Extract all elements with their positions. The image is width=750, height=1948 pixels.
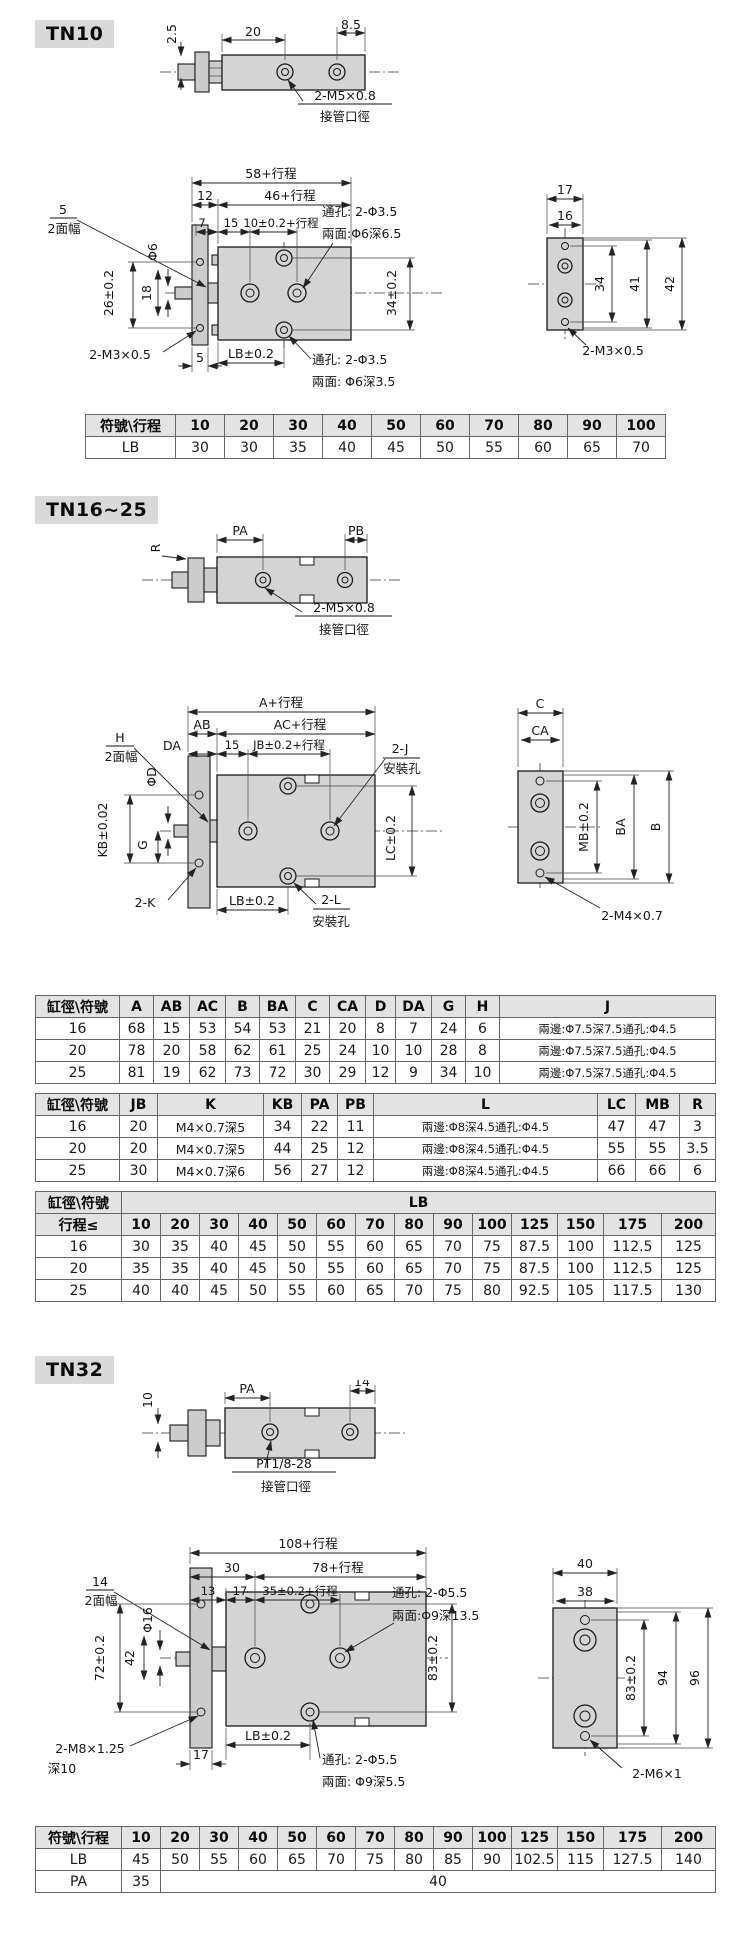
data-cell: 25 <box>36 1062 120 1084</box>
header-cell: 缸徑\符號 <box>36 996 120 1018</box>
dim-16: 16 <box>557 208 573 223</box>
dim-kb: KB±0.02 <box>95 802 110 857</box>
header-cell: KB <box>264 1094 302 1116</box>
header-cell: 175 <box>604 1214 662 1236</box>
data-cell: 60 <box>239 1849 278 1871</box>
header-cell: 100 <box>473 1214 512 1236</box>
header-cell: 90 <box>434 1827 473 1849</box>
flat-width-label: 2面幅 <box>105 749 138 764</box>
dim-46: 46+行程 <box>264 188 316 203</box>
mount-hole-label-top: 安裝孔 <box>383 761 421 776</box>
data-cell: 65 <box>356 1280 395 1302</box>
data-cell: 100 <box>558 1258 604 1280</box>
data-cell: 20 <box>330 1018 366 1040</box>
data-cell: 12 <box>338 1160 374 1182</box>
data-cell: 25 <box>296 1040 330 1062</box>
data-cell: M4×0.7深5 <box>158 1116 264 1138</box>
header-cell: 行程≤ <box>36 1214 122 1236</box>
dim-pitch: 35±0.2+行程 <box>262 1584 338 1598</box>
data-cell: 40 <box>122 1280 161 1302</box>
cylinder-front-shape <box>160 756 442 908</box>
end-plate-shape <box>538 1600 636 1756</box>
data-cell: 50 <box>278 1258 317 1280</box>
data-cell: 兩邊:Φ8深4.5通孔:Φ4.5 <box>374 1138 598 1160</box>
data-cell: 61 <box>260 1040 296 1062</box>
data-cell: 35 <box>161 1236 200 1258</box>
data-cell: 20 <box>154 1040 190 1062</box>
dim-g: G <box>135 840 150 850</box>
data-cell: 90 <box>473 1849 512 1871</box>
dim-ba: BA <box>613 818 628 836</box>
header-cell: PA <box>302 1094 338 1116</box>
data-cell: LB <box>36 1849 122 1871</box>
dim-94: 94 <box>655 1670 670 1686</box>
data-cell: PA <box>36 1871 122 1893</box>
data-cell: 6 <box>680 1160 716 1182</box>
table-row: 缸徑\符號AABACBBACCADDAGHJ <box>36 996 716 1018</box>
cylinder-top-shape <box>142 557 402 603</box>
cylinder-top-shape <box>142 1408 408 1458</box>
dim-34: 34±0.2 <box>384 270 399 316</box>
dim-c: C <box>536 696 545 711</box>
through-hole-note-bottom-2: 兩面: Φ6深3.5 <box>312 374 395 389</box>
table-row: 254040455055606570758092.5105117.5130 <box>36 1280 716 1302</box>
data-cell: 54 <box>226 1018 260 1040</box>
data-cell: 70 <box>317 1849 356 1871</box>
data-cell: 47 <box>636 1116 680 1138</box>
through-hole-note-bottom-1: 通孔: 2-Φ3.5 <box>312 352 387 367</box>
dim-rod-dia: Φ6 <box>145 243 160 261</box>
dim-rod-dia: ΦD <box>144 767 159 786</box>
data-cell: 87.5 <box>512 1258 558 1280</box>
tn16-side-view-drawing: C CA MB±0.2 BA B 2-M4×0.7 <box>505 690 750 940</box>
dim-72: 72±0.2 <box>92 1635 107 1681</box>
header-cell: 70 <box>470 415 519 437</box>
data-cell: 66 <box>598 1160 636 1182</box>
data-cell: 6 <box>466 1018 500 1040</box>
data-cell: 29 <box>330 1062 366 1084</box>
data-cell: 75 <box>434 1280 473 1302</box>
data-cell: 55 <box>317 1258 356 1280</box>
header-cell: 50 <box>278 1827 317 1849</box>
header-cell: 200 <box>662 1827 716 1849</box>
header-cell: A <box>120 996 154 1018</box>
header-cell: 50 <box>278 1214 317 1236</box>
data-cell: 112.5 <box>604 1236 662 1258</box>
data-cell: 44 <box>264 1138 302 1160</box>
dim-15: 15 <box>225 738 240 752</box>
tn10-front-view-drawing: 58+行程 12 46+行程 7 15 10±0.2+行程 5 2面幅 Φ6 2… <box>35 140 505 400</box>
data-cell: 78 <box>120 1040 154 1062</box>
table-row: 缸徑\符號JBKKBPAPBLLCMBR <box>36 1094 716 1116</box>
data-cell: 68 <box>120 1018 154 1040</box>
through-hole-note-bottom-2: 兩面: Φ9深5.5 <box>322 1774 405 1789</box>
tn10-top-view-drawing: 20 8.5 2.5 2-M5×0.8 接管口徑 <box>130 6 420 130</box>
mount-hole-note-top: 2-J <box>392 741 409 756</box>
data-cell: 125 <box>662 1236 716 1258</box>
data-cell: 66 <box>636 1160 680 1182</box>
tn32-stroke-table: 符號\行程102030405060708090100125150175200LB… <box>35 1826 716 1893</box>
table-row: 2530M4×0.7深6562712兩邊:Φ8深4.5通孔:Φ4.566666 <box>36 1160 716 1182</box>
data-cell: 30 <box>176 437 225 459</box>
header-cell: 20 <box>161 1827 200 1849</box>
tn16-dimension-table-1: 缸徑\符號AABACBBACCADDAGHJ166815535453212087… <box>35 995 716 1084</box>
dim-7: 7 <box>198 216 205 230</box>
data-cell: 20 <box>36 1258 122 1280</box>
data-cell: 140 <box>662 1849 716 1871</box>
data-cell: 35 <box>274 437 323 459</box>
data-cell: 73 <box>226 1062 260 1084</box>
table-row: 缸徑\符號LB <box>36 1192 716 1214</box>
dim-38: 38 <box>577 1584 593 1599</box>
data-cell: 45 <box>239 1258 278 1280</box>
data-cell: 20 <box>120 1116 158 1138</box>
header-cell: 50 <box>372 415 421 437</box>
data-cell: 65 <box>278 1849 317 1871</box>
data-cell: 16 <box>36 1018 120 1040</box>
table-row: 20782058626125241010288兩邊:Φ7.5深7.5通孔:Φ4.… <box>36 1040 716 1062</box>
header-cell: D <box>366 996 396 1018</box>
dim-15: 15 <box>224 216 239 230</box>
dim-jb: JB±0.2+行程 <box>252 738 325 752</box>
data-cell: 45 <box>239 1236 278 1258</box>
data-cell: 56 <box>264 1160 302 1182</box>
header-cell: LC <box>598 1094 636 1116</box>
data-cell: 28 <box>432 1040 466 1062</box>
header-cell: 缸徑\符號 <box>36 1094 120 1116</box>
data-cell: 45 <box>372 437 421 459</box>
data-cell: 92.5 <box>512 1280 558 1302</box>
header-cell: PB <box>338 1094 374 1116</box>
data-cell: 58 <box>190 1040 226 1062</box>
dim-pb: PB <box>348 523 364 538</box>
header-cell: JB <box>120 1094 158 1116</box>
data-cell: 16 <box>36 1116 120 1138</box>
flange-thread-note: 2-K <box>135 895 156 910</box>
dim-b: B <box>648 823 663 832</box>
data-cell: 16 <box>36 1236 122 1258</box>
header-cell: 10 <box>122 1214 161 1236</box>
mount-hole-label-bottom: 安裝孔 <box>312 914 350 929</box>
flange-thread-note: 2-M3×0.5 <box>89 347 151 362</box>
flange-thread-note: 2-M8×1.25 <box>55 1741 125 1756</box>
data-cell: 55 <box>317 1236 356 1258</box>
data-cell: 62 <box>226 1040 260 1062</box>
data-cell: 兩邊:Φ7.5深7.5通孔:Φ4.5 <box>500 1040 716 1062</box>
data-cell: 117.5 <box>604 1280 662 1302</box>
dim-14: 14 <box>354 1380 370 1389</box>
header-cell: 10 <box>122 1827 161 1849</box>
header-cell: L <box>374 1094 598 1116</box>
dim-42: 42 <box>662 276 677 292</box>
data-cell: 65 <box>395 1258 434 1280</box>
header-cell: 200 <box>662 1214 716 1236</box>
data-cell: 50 <box>421 437 470 459</box>
header-cell: 30 <box>200 1214 239 1236</box>
data-cell: 7 <box>396 1018 432 1040</box>
tn16-lb-stroke-table: 缸徑\符號LB行程≤102030405060708090100125150175… <box>35 1191 716 1302</box>
data-cell: 10 <box>466 1062 500 1084</box>
data-cell: 3.5 <box>680 1138 716 1160</box>
table-row: 符號\行程102030405060708090100125150175200 <box>36 1827 716 1849</box>
data-cell: 19 <box>154 1062 190 1084</box>
dim-5: 5 <box>196 350 204 365</box>
data-cell: 35 <box>161 1258 200 1280</box>
data-cell: 27 <box>302 1160 338 1182</box>
header-cell: G <box>432 996 466 1018</box>
data-cell: 兩邊:Φ7.5深7.5通孔:Φ4.5 <box>500 1062 716 1084</box>
dim-41: 41 <box>627 276 642 292</box>
data-cell: 65 <box>395 1236 434 1258</box>
data-cell: 70 <box>434 1236 473 1258</box>
dim-12: 12 <box>197 188 213 203</box>
data-cell: 25 <box>36 1280 122 1302</box>
header-cell: 100 <box>617 415 666 437</box>
data-cell: M4×0.7深6 <box>158 1160 264 1182</box>
data-cell: 53 <box>190 1018 226 1040</box>
header-cell: 100 <box>473 1827 512 1849</box>
header-cell: J <box>500 996 716 1018</box>
dim-40: 40 <box>577 1556 593 1571</box>
dim-pitch: 10±0.2+行程 <box>243 216 319 230</box>
plate-thread-note: 2-M6×1 <box>632 1766 682 1781</box>
data-cell: 22 <box>302 1116 338 1138</box>
header-cell: CA <box>330 996 366 1018</box>
table-row: LB30303540455055606570 <box>86 437 666 459</box>
data-cell: 11 <box>338 1116 374 1138</box>
data-cell: 60 <box>317 1280 356 1302</box>
header-cell: 40 <box>239 1214 278 1236</box>
plate-thread-note: 2-M4×0.7 <box>601 908 663 923</box>
data-cell: 12 <box>366 1062 396 1084</box>
data-cell: 55 <box>200 1849 239 1871</box>
section-title-tn10: TN10 <box>35 20 114 48</box>
data-cell: 30 <box>122 1236 161 1258</box>
dim-26: 26±0.2 <box>101 270 116 316</box>
data-cell: 3 <box>680 1116 716 1138</box>
table-row: 1620M4×0.7深5342211兩邊:Φ8深4.5通孔:Φ4.547473 <box>36 1116 716 1138</box>
data-cell: 兩邊:Φ8深4.5通孔:Φ4.5 <box>374 1116 598 1138</box>
data-cell: 30 <box>225 437 274 459</box>
header-cell: C <box>296 996 330 1018</box>
data-cell: 8 <box>366 1018 396 1040</box>
dim-pa: PA <box>232 523 248 538</box>
dim-ab: AB <box>193 717 210 732</box>
data-cell: 60 <box>519 437 568 459</box>
data-cell: 12 <box>338 1138 374 1160</box>
header-cell: 60 <box>317 1827 356 1849</box>
dim-da: DA <box>163 738 181 753</box>
data-cell: 35 <box>122 1258 161 1280</box>
through-hole-note-top-2: 兩面:Φ9深13.5 <box>392 1608 479 1623</box>
data-cell: 20 <box>120 1138 158 1160</box>
data-cell: 47 <box>598 1116 636 1138</box>
data-cell: 80 <box>395 1849 434 1871</box>
data-cell: 55 <box>636 1138 680 1160</box>
data-cell: 兩邊:Φ7.5深7.5通孔:Φ4.5 <box>500 1018 716 1040</box>
data-cell: 25 <box>36 1160 120 1182</box>
data-cell: 30 <box>296 1062 330 1084</box>
data-cell: 9 <box>396 1062 432 1084</box>
data-cell: 24 <box>432 1018 466 1040</box>
header-cell: 150 <box>558 1827 604 1849</box>
flat-width-num: 14 <box>92 1574 108 1589</box>
header-cell: 20 <box>225 415 274 437</box>
data-cell: 40 <box>200 1258 239 1280</box>
flat-width-label: 2面幅 <box>48 221 81 236</box>
header-cell: AB <box>154 996 190 1018</box>
flange-thread-depth: 深10 <box>48 1761 76 1776</box>
table-row: 25811962737230291293410兩邊:Φ7.5深7.5通孔:Φ4.… <box>36 1062 716 1084</box>
dim-78: 78+行程 <box>312 1560 364 1575</box>
header-cell: 80 <box>519 415 568 437</box>
header-cell: 符號\行程 <box>36 1827 122 1849</box>
tn32-top-view-drawing: PA 14 10 PT1/8-28 接管口徑 <box>125 1380 425 1510</box>
port-thread-note: 2-M5×0.8 <box>313 600 375 615</box>
data-cell: 75 <box>473 1258 512 1280</box>
data-cell: 60 <box>356 1258 395 1280</box>
through-hole-note-top-1: 通孔: 2-Φ5.5 <box>392 1585 467 1600</box>
header-cell: 90 <box>434 1214 473 1236</box>
tn32-front-view-drawing: 108+行程 30 78+行程 13 17 35±0.2+行程 14 2面幅 Φ… <box>35 1530 505 1805</box>
through-hole-note-top-2: 兩面:Φ6深6.5 <box>322 226 401 241</box>
through-hole-note-top-1: 通孔: 2-Φ3.5 <box>322 204 397 219</box>
table-row: 166815535453212087246兩邊:Φ7.5深7.5通孔:Φ4.5 <box>36 1018 716 1040</box>
data-cell: 125 <box>662 1258 716 1280</box>
header-cell: 符號\行程 <box>86 415 176 437</box>
header-cell: 90 <box>568 415 617 437</box>
data-cell: 40 <box>161 1280 200 1302</box>
end-plate-shape <box>528 228 602 342</box>
header-cell: 175 <box>604 1827 662 1849</box>
data-cell: 62 <box>190 1062 226 1084</box>
dim-lb: LB±0.2 <box>245 1728 291 1743</box>
header-cell: LB <box>122 1192 716 1214</box>
header-cell: 80 <box>395 1214 434 1236</box>
data-cell: 70 <box>617 437 666 459</box>
dim-96: 96 <box>687 1670 702 1686</box>
dim-18: 18 <box>139 285 154 301</box>
header-cell: 125 <box>512 1214 558 1236</box>
header-cell: BA <box>260 996 296 1018</box>
data-cell: 34 <box>264 1116 302 1138</box>
dim-rod-dia: Φ16 <box>140 1607 155 1633</box>
data-cell: 21 <box>296 1018 330 1040</box>
flat-width-num: 5 <box>59 202 67 217</box>
dim-8-5: 8.5 <box>341 17 361 32</box>
header-cell: 70 <box>356 1827 395 1849</box>
data-cell: 75 <box>356 1849 395 1871</box>
data-cell: 8 <box>466 1040 500 1062</box>
data-cell: 20 <box>36 1138 120 1160</box>
data-cell: 75 <box>473 1236 512 1258</box>
tn32-side-view-drawing: 40 38 83±0.2 94 96 2-M6×1 <box>505 1545 750 1800</box>
plate-thread-note: 2-M3×0.5 <box>582 343 644 358</box>
data-cell: LB <box>86 437 176 459</box>
data-cell: 30 <box>120 1160 158 1182</box>
data-cell: 115 <box>558 1849 604 1871</box>
data-cell: 105 <box>558 1280 604 1302</box>
dim-lc: LC±0.2 <box>383 815 398 861</box>
dim-17: 17 <box>233 1584 248 1598</box>
tn10-stroke-table: 符號\行程102030405060708090100LB303035404550… <box>85 414 666 459</box>
port-label-cn: 接管口徑 <box>261 1479 311 1494</box>
cylinder-front-shape <box>165 225 445 348</box>
dim-total: A+行程 <box>259 695 304 710</box>
dim-total: 58+行程 <box>245 166 297 181</box>
tn10-side-view-drawing: 17 16 34 41 42 2-M3×0.5 <box>505 160 745 400</box>
data-cell: 87.5 <box>512 1236 558 1258</box>
flat-width-label: 2面幅 <box>85 1593 118 1608</box>
table-row: 203535404550556065707587.5100112.5125 <box>36 1258 716 1280</box>
data-cell: 72 <box>260 1062 296 1084</box>
header-cell: B <box>226 996 260 1018</box>
data-cell: 15 <box>154 1018 190 1040</box>
data-cell: 40 <box>161 1871 716 1893</box>
data-cell: 50 <box>278 1236 317 1258</box>
dim-34: 34 <box>592 276 607 292</box>
data-cell: 24 <box>330 1040 366 1062</box>
section-title-tn32: TN32 <box>35 1356 114 1384</box>
dim-ac: AC+行程 <box>274 717 327 732</box>
port-thread-note: PT1/8-28 <box>256 1456 312 1471</box>
header-cell: 40 <box>323 415 372 437</box>
header-cell: 125 <box>512 1827 558 1849</box>
header-cell: 缸徑\符號 <box>36 1192 122 1214</box>
cylinder-top-shape <box>160 52 402 92</box>
data-cell: 85 <box>434 1849 473 1871</box>
header-cell: R <box>680 1094 716 1116</box>
through-hole-note-bottom-1: 通孔: 2-Φ5.5 <box>322 1752 397 1767</box>
data-cell: 35 <box>122 1871 161 1893</box>
header-cell: 150 <box>558 1214 604 1236</box>
header-cell: 70 <box>356 1214 395 1236</box>
dim-83: 83±0.2 <box>425 1635 440 1681</box>
mount-hole-note-bottom: 2-L <box>321 892 340 907</box>
header-cell: 40 <box>239 1827 278 1849</box>
dim-10: 10 <box>140 1392 155 1408</box>
data-cell: 80 <box>473 1280 512 1302</box>
data-cell: 20 <box>36 1040 120 1062</box>
tn16-front-view-drawing: A+行程 AB AC+行程 DA 15 JB±0.2+行程 H 2面幅 ΦD K… <box>35 685 505 940</box>
dim-20: 20 <box>245 24 261 39</box>
data-cell: 10 <box>366 1040 396 1062</box>
data-cell: 50 <box>161 1849 200 1871</box>
data-cell: 112.5 <box>604 1258 662 1280</box>
dim-30: 30 <box>224 1560 240 1575</box>
dim-2-5: 2.5 <box>164 24 179 44</box>
dim-total: 108+行程 <box>278 1536 338 1551</box>
data-cell: 60 <box>356 1236 395 1258</box>
table-row: 2020M4×0.7深5442512兩邊:Φ8深4.5通孔:Φ4.555553.… <box>36 1138 716 1160</box>
data-cell: 45 <box>200 1280 239 1302</box>
data-cell: 34 <box>432 1062 466 1084</box>
data-cell: 127.5 <box>604 1849 662 1871</box>
port-label-cn: 接管口徑 <box>320 109 370 124</box>
header-cell: 60 <box>317 1214 356 1236</box>
header-cell: 10 <box>176 415 225 437</box>
dim-r: R <box>148 543 163 552</box>
table-row: 163035404550556065707587.5100112.5125 <box>36 1236 716 1258</box>
data-cell: 100 <box>558 1236 604 1258</box>
header-cell: 20 <box>161 1214 200 1236</box>
header-cell: 60 <box>421 415 470 437</box>
dim-pa: PA <box>239 1381 255 1396</box>
dim-ca: CA <box>531 723 549 738</box>
port-thread-note: 2-M5×0.8 <box>314 88 376 103</box>
data-cell: 45 <box>122 1849 161 1871</box>
header-cell: K <box>158 1094 264 1116</box>
